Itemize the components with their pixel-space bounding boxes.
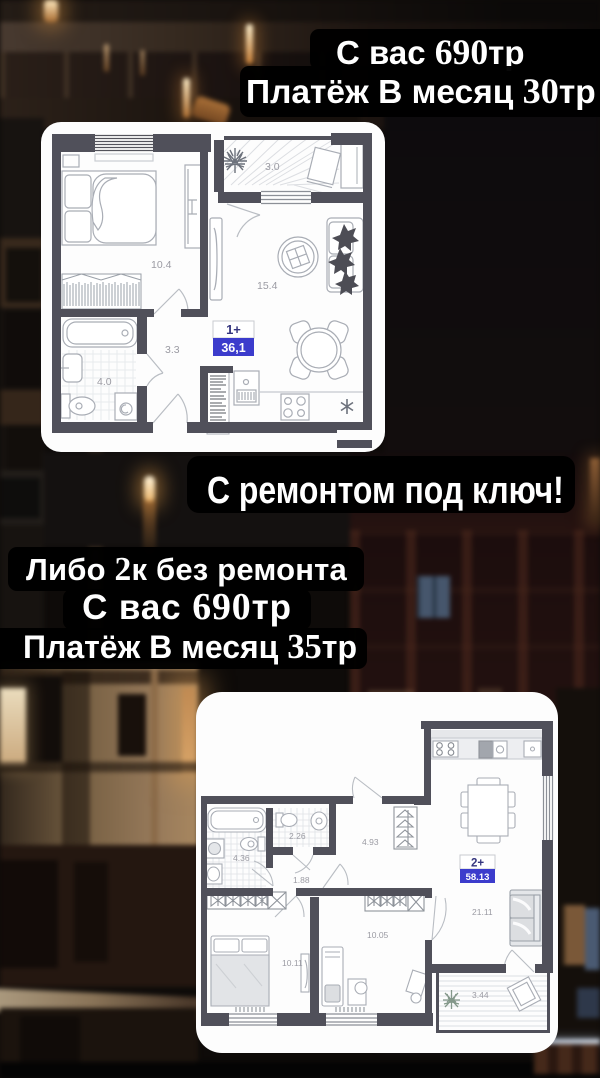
- svg-text:4.36: 4.36: [233, 853, 250, 863]
- svg-text:10.05: 10.05: [367, 930, 389, 940]
- svg-text:4.0: 4.0: [97, 376, 112, 388]
- svg-text:1+: 1+: [226, 322, 241, 337]
- svg-text:10.11: 10.11: [282, 958, 303, 968]
- svg-text:3.0: 3.0: [265, 161, 280, 173]
- svg-text:15.4: 15.4: [257, 280, 278, 292]
- svg-text:2+: 2+: [471, 858, 484, 870]
- svg-text:58.13: 58.13: [466, 872, 490, 883]
- svg-text:36,1: 36,1: [221, 341, 245, 355]
- svg-text:3.44: 3.44: [472, 990, 489, 1000]
- svg-text:10.4: 10.4: [151, 259, 172, 271]
- svg-text:1.88: 1.88: [293, 875, 310, 885]
- svg-text:3.3: 3.3: [165, 344, 180, 356]
- svg-text:21.11: 21.11: [472, 907, 493, 917]
- svg-text:2.26: 2.26: [289, 831, 306, 841]
- svg-text:4.93: 4.93: [362, 837, 379, 847]
